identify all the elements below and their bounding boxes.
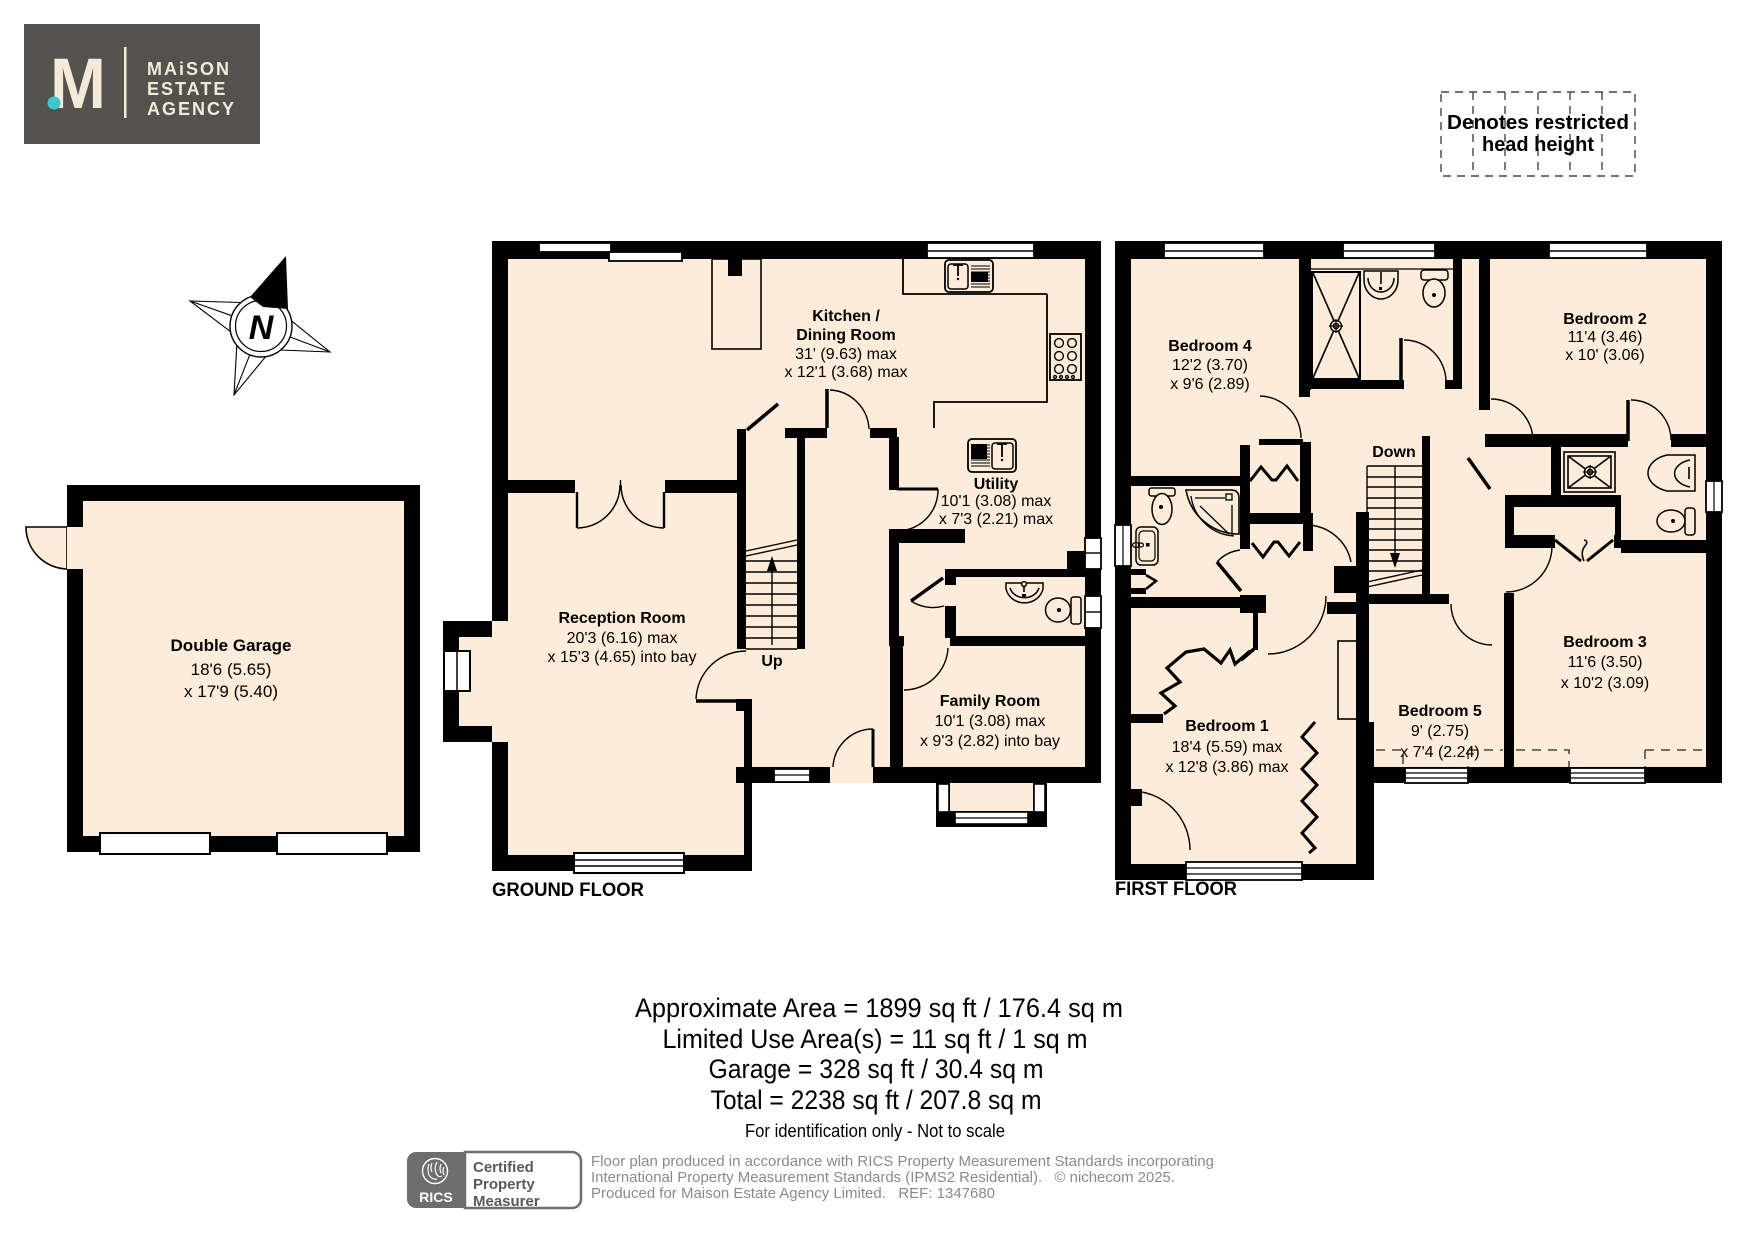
svg-text:Double Garage: Double Garage	[171, 636, 292, 655]
svg-text:Property: Property	[473, 1176, 535, 1193]
svg-text:Dining Room: Dining Room	[796, 327, 896, 344]
svg-text:Family Room: Family Room	[940, 693, 1040, 710]
svg-text:Down: Down	[1372, 444, 1416, 461]
svg-text:head height: head height	[1482, 134, 1594, 156]
svg-text:Produced for Maison Estate Age: Produced for Maison Estate Agency Limite…	[591, 1185, 995, 1202]
svg-text:Total = 2238 sq ft / 207.8 sq: Total = 2238 sq ft / 207.8 sq m	[711, 1085, 1042, 1115]
svg-text:11'4 (3.46): 11'4 (3.46)	[1568, 329, 1643, 346]
svg-text:x 12'8 (3.86) max: x 12'8 (3.86) max	[1165, 759, 1288, 776]
svg-text:x 12'1 (3.68) max: x 12'1 (3.68) max	[784, 364, 907, 381]
svg-text:GROUND FLOOR: GROUND FLOOR	[492, 880, 644, 901]
svg-text:FIRST FLOOR: FIRST FLOOR	[1115, 879, 1237, 900]
svg-text:18'6 (5.65): 18'6 (5.65)	[191, 660, 272, 679]
svg-text:12'2 (3.70): 12'2 (3.70)	[1172, 357, 1248, 374]
svg-text:Reception Room: Reception Room	[558, 610, 685, 627]
svg-text:Approximate Area = 1899 sq ft: Approximate Area = 1899 sq ft / 176.4 sq…	[635, 993, 1123, 1023]
svg-text:11'6 (3.50): 11'6 (3.50)	[1568, 654, 1643, 671]
svg-text:Denotes restricted: Denotes restricted	[1447, 112, 1629, 134]
svg-text:x 7'4 (2.24): x 7'4 (2.24)	[1400, 744, 1480, 761]
svg-text:N: N	[249, 309, 275, 347]
svg-text:9' (2.75): 9' (2.75)	[1411, 723, 1469, 740]
svg-text:Utility: Utility	[974, 476, 1019, 493]
svg-text:x 17'9 (5.40): x 17'9 (5.40)	[184, 682, 278, 701]
svg-text:Garage = 328 sq ft / 30.4 sq m: Garage = 328 sq ft / 30.4 sq m	[709, 1054, 1044, 1084]
svg-text:M: M	[50, 45, 106, 124]
svg-text:RICS: RICS	[419, 1189, 452, 1205]
svg-text:Bedroom 1: Bedroom 1	[1185, 718, 1269, 735]
svg-text:10'1 (3.08) max: 10'1 (3.08) max	[935, 713, 1046, 730]
svg-text:x 15'3 (4.65) into bay: x 15'3 (4.65) into bay	[548, 649, 697, 666]
svg-text:Bedroom 4: Bedroom 4	[1168, 338, 1252, 355]
svg-text:AGENCY: AGENCY	[147, 99, 236, 119]
svg-text:Bedroom 5: Bedroom 5	[1398, 703, 1482, 720]
svg-text:MAiSON: MAiSON	[147, 59, 231, 79]
svg-text:18'4 (5.59) max: 18'4 (5.59) max	[1172, 739, 1283, 756]
svg-text:x 9'3 (2.82) into bay: x 9'3 (2.82) into bay	[920, 733, 1060, 750]
svg-text:Certified: Certified	[473, 1159, 534, 1176]
svg-text:Limited Use Area(s) = 11 sq ft: Limited Use Area(s) = 11 sq ft / 1 sq m	[663, 1024, 1088, 1054]
svg-text:Bedroom 3: Bedroom 3	[1563, 634, 1647, 651]
svg-text:x 7'3 (2.21) max: x 7'3 (2.21) max	[939, 511, 1053, 528]
svg-text:Floor plan produced in accorda: Floor plan produced in accordance with R…	[591, 1153, 1214, 1170]
svg-text:31' (9.63) max: 31' (9.63) max	[795, 346, 897, 363]
svg-text:20'3 (6.16) max: 20'3 (6.16) max	[567, 630, 678, 647]
svg-text:10'1 (3.08) max: 10'1 (3.08) max	[941, 493, 1052, 510]
svg-text:Measurer: Measurer	[473, 1193, 540, 1210]
svg-text:ESTATE: ESTATE	[147, 79, 227, 99]
svg-text:International Property Measure: International Property Measurement Stand…	[591, 1169, 1175, 1186]
svg-text:x 10' (3.06): x 10' (3.06)	[1565, 347, 1645, 364]
svg-text:For identification only - Not: For identification only - Not to scale	[745, 1121, 1005, 1141]
svg-text:x 9'6 (2.89): x 9'6 (2.89)	[1170, 376, 1250, 393]
svg-text:Kitchen /: Kitchen /	[812, 308, 880, 325]
svg-text:Bedroom 2: Bedroom 2	[1563, 311, 1647, 328]
svg-text:Up: Up	[761, 653, 783, 670]
svg-text:x 10'2 (3.09): x 10'2 (3.09)	[1561, 675, 1649, 692]
